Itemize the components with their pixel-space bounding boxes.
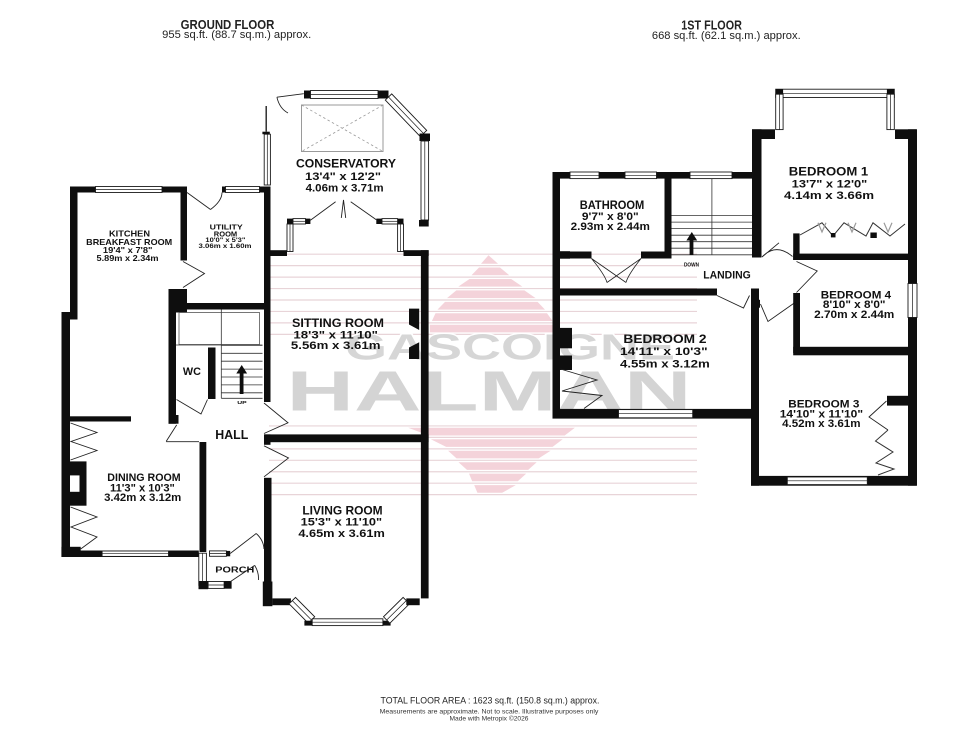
svg-text:4.55m x 3.12m: 4.55m x 3.12m <box>620 358 710 370</box>
svg-text:BEDROOM 1: BEDROOM 1 <box>789 166 869 178</box>
svg-text:2.70m x 2.44m: 2.70m x 2.44m <box>814 309 894 321</box>
svg-text:5.56m x 3.61m: 5.56m x 3.61m <box>291 340 381 352</box>
svg-text:LANDING: LANDING <box>703 270 751 282</box>
svg-text:14'11" x 10'3": 14'11" x 10'3" <box>620 346 708 358</box>
svg-text:4.14m x 3.66m: 4.14m x 3.66m <box>784 190 874 202</box>
svg-text:SITTING ROOM: SITTING ROOM <box>292 318 384 330</box>
svg-text:4.65m x 3.61m: 4.65m x 3.61m <box>298 528 385 540</box>
svg-text:CONSERVATORY: CONSERVATORY <box>296 159 396 171</box>
svg-text:DOWN: DOWN <box>684 262 699 268</box>
svg-text:955 sq.ft. (88.7 sq.m.) approx: 955 sq.ft. (88.7 sq.m.) approx. <box>162 29 311 41</box>
svg-text:13'7" x 12'0": 13'7" x 12'0" <box>792 178 868 190</box>
svg-text:TOTAL FLOOR AREA : 1623 sq.ft.: TOTAL FLOOR AREA : 1623 sq.ft. (150.8 sq… <box>381 696 600 707</box>
svg-text:BEDROOM 2: BEDROOM 2 <box>623 334 706 346</box>
svg-text:WC: WC <box>183 366 201 378</box>
svg-text:3.06m x 1.60m: 3.06m x 1.60m <box>199 243 252 250</box>
svg-text:UP: UP <box>237 400 248 406</box>
svg-text:668 sq.ft. (62.1 sq.m.) approx: 668 sq.ft. (62.1 sq.m.) approx. <box>652 30 801 42</box>
svg-text:2.93m x 2.44m: 2.93m x 2.44m <box>571 221 650 233</box>
svg-text:Made with Metropix ©2026: Made with Metropix ©2026 <box>450 715 530 722</box>
svg-text:13'4" x 12'2": 13'4" x 12'2" <box>305 171 381 183</box>
svg-text:4.52m x 3.61m: 4.52m x 3.61m <box>782 418 860 430</box>
svg-text:HALL: HALL <box>215 427 248 442</box>
svg-text:4.06m x 3.71m: 4.06m x 3.71m <box>306 183 384 195</box>
svg-text:15'3" x 11'10": 15'3" x 11'10" <box>301 516 382 528</box>
svg-text:PORCH: PORCH <box>215 565 254 575</box>
svg-text:3.42m x 3.12m: 3.42m x 3.12m <box>104 492 181 504</box>
svg-text:5.89m x 2.34m: 5.89m x 2.34m <box>97 254 159 263</box>
